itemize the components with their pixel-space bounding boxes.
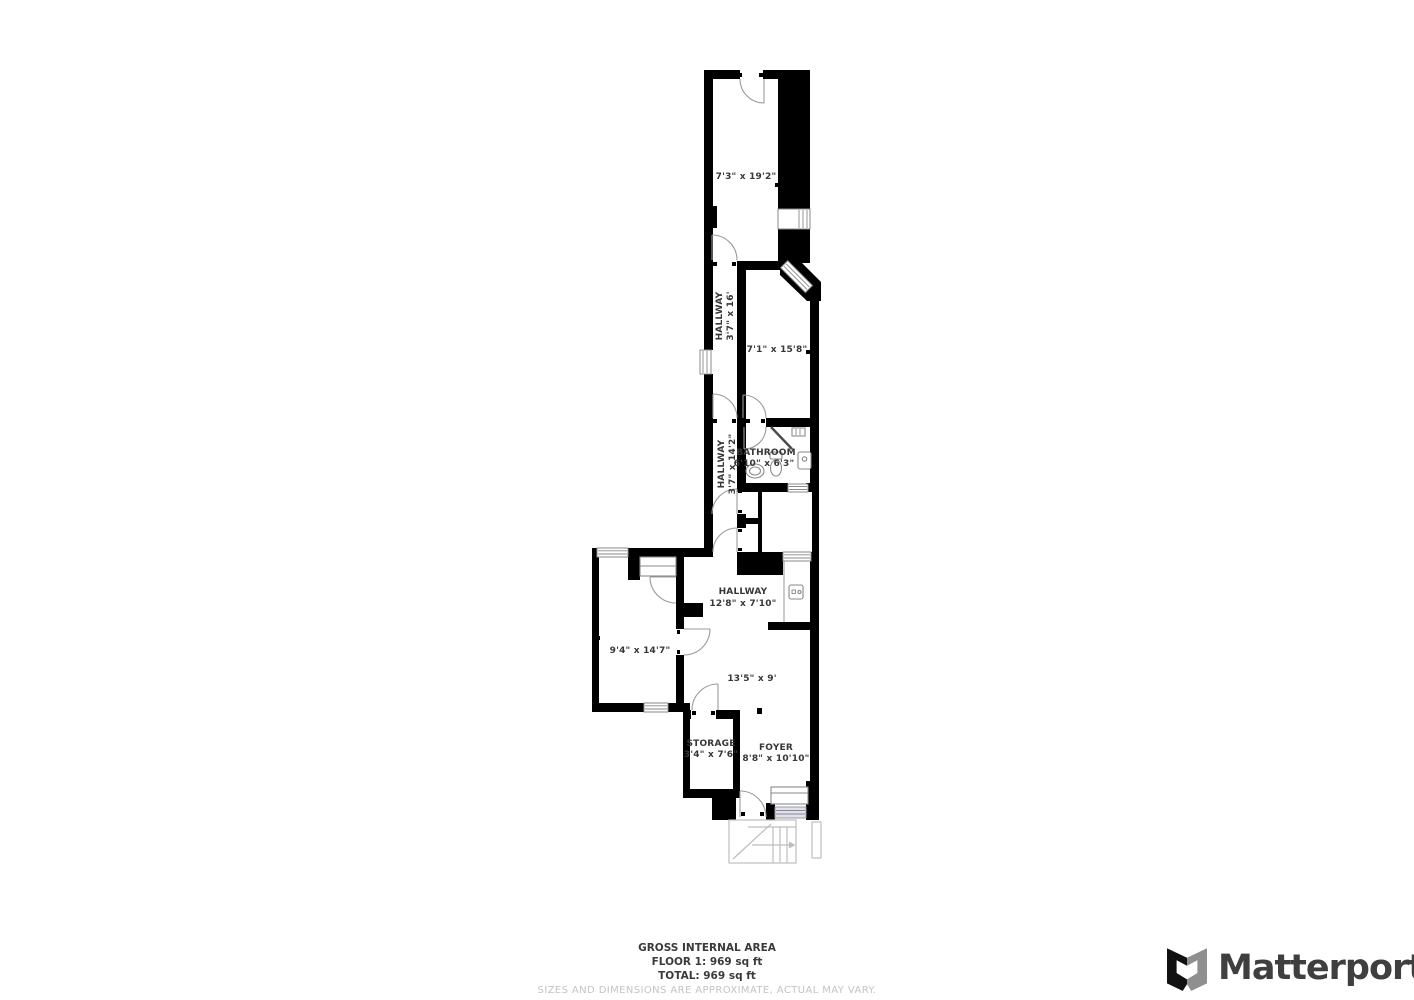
room-label-bedroom-left: 9'4" x 14'7" xyxy=(610,646,671,656)
room-label-hallway14-name: HALLWAY xyxy=(717,439,727,488)
matterport-m-icon xyxy=(1163,945,1211,993)
room-label-hallway16-name: HALLWAY xyxy=(715,291,725,340)
door-room2-bottom xyxy=(743,395,766,418)
entry-sidelight xyxy=(775,807,806,818)
window-top-room-right xyxy=(778,209,810,229)
footer-gross-internal-area: GROSS INTERNAL AREA xyxy=(407,941,1007,955)
kitchen-nook xyxy=(784,561,810,622)
door-bedroom-closet xyxy=(650,577,676,603)
footer-area-summary: GROSS INTERNAL AREA FLOOR 1: 969 sq ft T… xyxy=(407,941,1007,998)
window-left-bottom xyxy=(644,703,668,712)
closet-foyer xyxy=(771,787,808,804)
door-top-room-bottom xyxy=(712,235,737,260)
room-label-hallway-main-dims: 12'8" x 7'10" xyxy=(709,599,776,609)
room-label-foyer-dims: 8'8" x 10'10" xyxy=(742,754,809,764)
room-label-hallway-main-name: HALLWAY xyxy=(719,587,768,597)
closet-bedroom xyxy=(640,557,676,576)
footer-floor1-area: FLOOR 1: 969 sq ft xyxy=(407,955,1007,969)
window-bathroom-bottom xyxy=(788,484,808,492)
matterport-wordmark: Matterport xyxy=(1218,944,1414,993)
window-hallway-left xyxy=(700,350,711,374)
door-hallway14-closet-2 xyxy=(713,528,737,552)
footer-disclaimer: SIZES AND DIMENSIONS ARE APPROXIMATE, AC… xyxy=(407,984,1007,998)
matterport-logo: Matterport xyxy=(1163,944,1414,993)
bathroom-angled-wall xyxy=(771,427,792,449)
stairs xyxy=(729,820,821,863)
room-label-hallway16-dims: 3'7" x 16' xyxy=(726,291,736,340)
room-label-storage-dims: 3'4" x 7'6" xyxy=(684,750,738,760)
room-label-bedroom-mid: 7'1" x 15'8" xyxy=(747,345,808,355)
room-label-storage-name: STORAGE xyxy=(686,739,735,749)
door-bathroom xyxy=(744,427,766,449)
radiator-icon xyxy=(792,428,805,436)
door-storage xyxy=(692,684,718,710)
window-left-top xyxy=(597,548,628,557)
room-label-bedroom-top: 7'3" x 19'2" xyxy=(716,172,777,182)
footer-total-area: TOTAL: 969 sq ft xyxy=(407,969,1007,983)
room-label-hallway14-dims: 3'7" x 14'2" xyxy=(728,434,738,495)
room-label-foyer-name: FOYER xyxy=(759,743,793,753)
room-label-living-room: 13'5" x 9' xyxy=(727,674,776,684)
room-label-bathroom-name: BATHROOM xyxy=(736,448,796,458)
door-living-room xyxy=(684,629,710,655)
room-label-bathroom-dims: 6'10" x 6'3" xyxy=(734,459,795,469)
door-top-room-top xyxy=(740,79,764,103)
floorplan-drawing: 7'3" x 19'2" HALLWAY 3'7" x 16' 7'1" x 1… xyxy=(0,0,1414,1000)
washer-icon xyxy=(798,452,811,469)
floorplan-page: 7'3" x 19'2" HALLWAY 3'7" x 16' 7'1" x 1… xyxy=(0,0,1414,1000)
door-hallway16-bottom xyxy=(713,394,737,418)
window-lightwell-bottom xyxy=(783,552,811,561)
